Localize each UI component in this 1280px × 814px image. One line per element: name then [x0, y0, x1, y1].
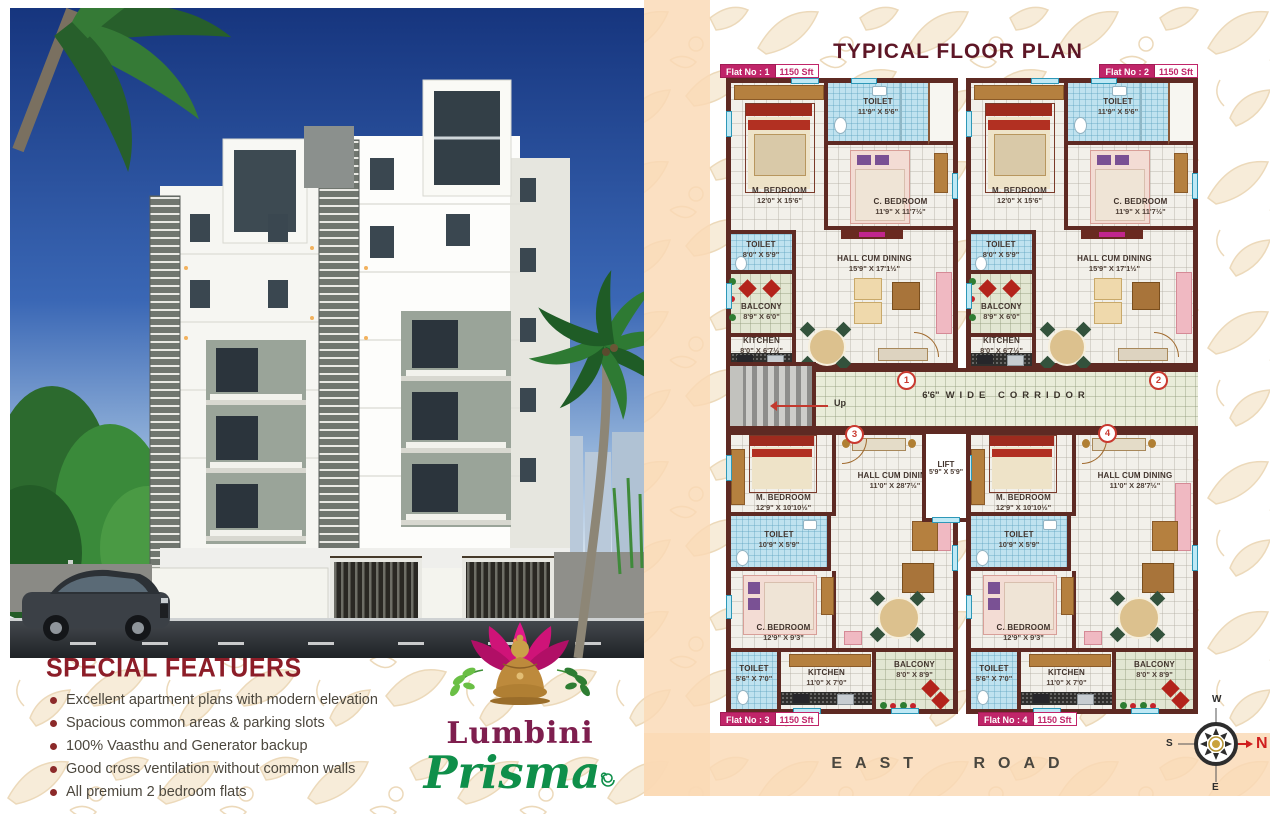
- flat-4: M. BEDROOM 12'9" X 10'10½" TOILET 10'9" …: [966, 430, 1198, 714]
- page-margin-left: [0, 0, 10, 660]
- bullet-icon: [50, 697, 57, 704]
- floor-cushion: [738, 279, 756, 297]
- staircase: [726, 362, 816, 430]
- north-arrow-icon: [1246, 740, 1253, 748]
- special-features: SPECIAL FEATUERS Excellent apartment pla…: [46, 654, 446, 807]
- room-label-toilet: TOILET 11'9" X 5'6": [828, 97, 928, 117]
- m-bedroom: M. BEDROOM 12'0" X 15'6": [731, 83, 828, 230]
- stove: [1033, 694, 1049, 703]
- coffee-table: [902, 563, 934, 593]
- window: [1131, 708, 1159, 714]
- toilet: TOILET 10'9" X 5'9": [971, 516, 1071, 571]
- c-bedroom: C. BEDROOM 11'9" X 11'7½": [828, 145, 953, 230]
- window: [726, 283, 732, 309]
- flat-tag-2: Flat No : 21150 Sft: [1099, 64, 1198, 78]
- window: [966, 111, 972, 137]
- features-title: SPECIAL FEATUERS: [46, 653, 446, 684]
- gate: [464, 560, 552, 622]
- unit-marker-4: 4: [1098, 424, 1117, 443]
- room-label-c-bedroom: C. BEDROOM 12'9" X 9'3": [971, 623, 1076, 643]
- balcony: BALCONY 8'9" X 6'0": [731, 270, 796, 333]
- toilet-fixture: [1074, 117, 1087, 134]
- room-label-hall: HALL CUM DINING 11'0" X 28'7½": [1090, 471, 1180, 491]
- logo-subname: Prisma: [420, 751, 620, 795]
- sofa: [936, 272, 952, 334]
- study-table: [934, 153, 948, 193]
- wash-basin: [803, 520, 817, 530]
- chair: [908, 439, 916, 448]
- room-label-kitchen: KITCHEN 8'0" X 6'7½": [971, 336, 1032, 356]
- floor-plan-title: TYPICAL FLOOR PLAN: [644, 40, 1272, 64]
- wash-basin: [1112, 86, 1127, 96]
- armchair: [854, 278, 882, 300]
- floor-cushion: [1002, 279, 1020, 297]
- window: [952, 545, 958, 571]
- flat-2: M. BEDROOM 12'0" X 15'6" TOILET 11'9" X …: [966, 78, 1198, 368]
- bullet-icon: [50, 789, 57, 796]
- window: [1192, 545, 1198, 571]
- room-label-m-bedroom: M. BEDROOM 12'0" X 15'6": [731, 186, 828, 206]
- room-label-toilet: TOILET 10'9" X 5'9": [971, 530, 1067, 550]
- toilet-fixture: [976, 550, 989, 566]
- kitchen-counter: [781, 692, 872, 705]
- kitchen: KITCHEN 8'0" X 6'7½": [731, 333, 796, 363]
- bed: [989, 435, 1057, 493]
- window: [1031, 78, 1059, 84]
- room-label-hall: HALL CUM DINING 15'9" X 17'1½": [806, 254, 943, 274]
- armchair: [1094, 302, 1122, 324]
- buddha-lotus-icon: [435, 614, 605, 714]
- room-label-toilet: TOILET 10'9" X 5'9": [731, 530, 827, 550]
- up-arrow-icon: [772, 405, 828, 407]
- window: [726, 595, 732, 619]
- kitchen: KITCHEN 11'0" X 7'0": [1021, 648, 1116, 709]
- room-label-toilet: TOILET 11'9" X 5'6": [1068, 97, 1168, 117]
- feature-item: Spacious common areas & parking slots: [50, 715, 446, 732]
- sink: [1007, 355, 1024, 366]
- wash-basin: [872, 86, 887, 96]
- room-label-c-bedroom: C. BEDROOM 11'9" X 11'7½": [1088, 197, 1193, 217]
- corridor-label: 6'6"WIDE CORRIDOR: [816, 390, 1196, 401]
- kitchen: KITCHEN 8'0" X 6'7½": [971, 333, 1036, 363]
- flat-tag-3: Flat No : 31150 Sft: [720, 712, 819, 726]
- room-label-kitchen: KITCHEN 11'0" X 7'0": [1021, 668, 1112, 688]
- c-bedroom: C. BEDROOM 11'9" X 11'7½": [1068, 145, 1193, 230]
- compass-n: N: [1256, 735, 1268, 753]
- unit-marker-1: 1: [897, 371, 916, 390]
- window: [966, 283, 972, 309]
- room-label-toilet-2: TOILET 8'0" X 5'9": [731, 240, 791, 260]
- wardrobe: [974, 85, 1064, 100]
- room-label-hall: HALL CUM DINING 15'9" X 17'1½": [1046, 254, 1183, 274]
- room-label-balcony: BALCONY 8'0" X 8'9": [1116, 660, 1193, 680]
- stairs-up-label: Up: [834, 398, 846, 408]
- window: [1192, 173, 1198, 199]
- seat: [1084, 631, 1102, 645]
- m-bedroom: M. BEDROOM 12'9" X 10'10½": [731, 435, 836, 516]
- window: [851, 78, 877, 84]
- tv-unit: [841, 230, 903, 239]
- tv: [859, 232, 885, 237]
- bullet-icon: [50, 720, 57, 727]
- bullet-icon: [50, 766, 57, 773]
- swirl-icon: [600, 772, 616, 788]
- hall-cum-dining: HALL CUM DINING 15'9" X 17'1½": [796, 230, 953, 363]
- study-table: [1174, 153, 1188, 193]
- brand-logo: Lumbini Prisma: [420, 614, 620, 795]
- window: [726, 111, 732, 137]
- coffee-table: [892, 282, 920, 310]
- page-margin-top: [0, 0, 644, 8]
- unit-marker-3: 3: [845, 425, 864, 444]
- room-label-toilet-2: TOILET 5'6" X 7'0": [731, 664, 777, 684]
- kitchen-counter: [1021, 692, 1112, 705]
- toilet-fixture: [737, 690, 749, 705]
- cabinet: [912, 521, 938, 551]
- coffee-table: [1132, 282, 1160, 310]
- tv: [1099, 232, 1125, 237]
- toilet-small: TOILET 8'0" X 5'9": [731, 230, 796, 270]
- utility-niche: [1168, 83, 1193, 145]
- tv-unit: [1081, 230, 1143, 239]
- kitchen-counter-top: [1029, 654, 1111, 667]
- sofa: [1176, 272, 1192, 334]
- page-margin-right: [1270, 0, 1280, 814]
- chair: [1148, 439, 1156, 448]
- window: [891, 708, 919, 714]
- room-label-balcony: BALCONY 8'9" X 6'0": [971, 302, 1032, 322]
- toilet-fixture: [977, 690, 989, 705]
- toilet-small: TOILET 8'0" X 5'9": [971, 230, 1036, 270]
- compass-rose: W S E N: [1164, 698, 1268, 792]
- compass-e: E: [1212, 782, 1219, 793]
- room-label-kitchen: KITCHEN 11'0" X 7'0": [781, 668, 872, 688]
- kitchen: KITCHEN 11'0" X 7'0": [781, 648, 876, 709]
- study-table: [821, 577, 834, 615]
- toilet: TOILET 10'9" X 5'9": [731, 516, 831, 571]
- gate: [332, 560, 420, 622]
- toilet-fixture: [834, 117, 847, 134]
- sink: [1077, 694, 1094, 705]
- seat: [844, 631, 862, 645]
- room-label-c-bedroom: C. BEDROOM 11'9" X 11'7½": [848, 197, 953, 217]
- toilet-fixture: [736, 550, 749, 566]
- coffee-table: [1142, 563, 1174, 593]
- floor-cushion: [762, 279, 780, 297]
- page-margin-bottom: [640, 796, 1280, 814]
- wardrobe: [734, 85, 824, 100]
- cabinet: [1152, 521, 1178, 551]
- window: [952, 173, 958, 199]
- bed: [749, 435, 817, 493]
- toilet-small: TOILET 5'6" X 7'0": [971, 648, 1021, 709]
- study-table: [1061, 577, 1074, 615]
- window: [726, 455, 732, 481]
- bullet-icon: [50, 743, 57, 750]
- feature-item: All premium 2 bedroom flats: [50, 784, 446, 801]
- armchair: [854, 302, 882, 324]
- room-label-m-bedroom: M. BEDROOM 12'0" X 15'6": [971, 186, 1068, 206]
- sink: [837, 694, 854, 705]
- features-list: Excellent apartment plans with modern el…: [50, 692, 446, 801]
- c-bedroom: C. BEDROOM 12'9" X 9'3": [731, 571, 836, 648]
- compass-s: S: [1166, 738, 1173, 749]
- c-bedroom: C. BEDROOM 12'9" X 9'3": [971, 571, 1076, 648]
- toilet-top: TOILET 11'9" X 5'6": [1068, 83, 1168, 145]
- wash-basin: [1043, 520, 1057, 530]
- toilet-top: TOILET 11'9" X 5'6": [828, 83, 928, 145]
- bed: [985, 103, 1055, 193]
- window: [966, 595, 972, 619]
- balcony: BALCONY 8'0" X 8'9": [876, 648, 953, 709]
- kitchen-counter-top: [789, 654, 871, 667]
- balcony: BALCONY 8'9" X 6'0": [971, 270, 1036, 333]
- entry-door: [914, 332, 939, 357]
- lift-door: [932, 517, 960, 523]
- flat-tag-1: Flat No : 11150 Sft: [720, 64, 819, 78]
- hall-cum-dining: HALL CUM DINING 11'0" X 28'7½": [1076, 435, 1193, 648]
- lift: LIFT 5'9" X 5'9": [922, 430, 970, 522]
- room-label-toilet-2: TOILET 5'6" X 7'0": [971, 664, 1017, 684]
- flat-1: M. BEDROOM 12'0" X 15'6" TOILET 11'9" X …: [726, 78, 958, 368]
- room-label-c-bedroom: C. BEDROOM 12'9" X 9'3": [731, 623, 836, 643]
- hall-cum-dining: HALL CUM DINING 15'9" X 17'1½": [1036, 230, 1193, 363]
- entry-door: [1082, 439, 1107, 464]
- stove: [793, 694, 809, 703]
- m-bedroom: M. BEDROOM 12'9" X 10'10½": [971, 435, 1076, 516]
- flat-tag-4: Flat No : 41150 Sft: [978, 712, 1077, 726]
- feature-item: Excellent apartment plans with modern el…: [50, 692, 446, 709]
- room-label-m-bedroom: M. BEDROOM 12'9" X 10'10½": [971, 493, 1076, 513]
- compass-w: W: [1212, 694, 1221, 705]
- feature-item: Good cross ventilation without common wa…: [50, 761, 446, 778]
- utility-niche: [928, 83, 953, 145]
- room-label-balcony: BALCONY 8'0" X 8'9": [876, 660, 953, 680]
- floor-cushion: [978, 279, 996, 297]
- m-bedroom: M. BEDROOM 12'0" X 15'6": [971, 83, 1068, 230]
- room-label-kitchen: KITCHEN 8'0" X 6'7½": [731, 336, 792, 356]
- floor-plan: Flat No : 11150 Sft Flat No : 21150 Sft …: [726, 64, 1198, 730]
- entry-door: [1154, 332, 1179, 357]
- armchair: [1094, 278, 1122, 300]
- room-label-toilet-2: TOILET 8'0" X 5'9": [971, 240, 1031, 260]
- logo-name: Lumbini: [420, 719, 620, 749]
- stove: [977, 355, 993, 364]
- feature-item: 100% Vaasthu and Generator backup: [50, 738, 446, 755]
- toilet-small: TOILET 5'6" X 7'0": [731, 648, 781, 709]
- unit-marker-2: 2: [1149, 371, 1168, 390]
- room-label-m-bedroom: M. BEDROOM 12'9" X 10'10½": [731, 493, 836, 513]
- building-render-photo: [10, 8, 644, 658]
- peach-left-strip: [644, 0, 710, 796]
- bed: [745, 103, 815, 193]
- room-label-balcony: BALCONY 8'9" X 6'0": [731, 302, 792, 322]
